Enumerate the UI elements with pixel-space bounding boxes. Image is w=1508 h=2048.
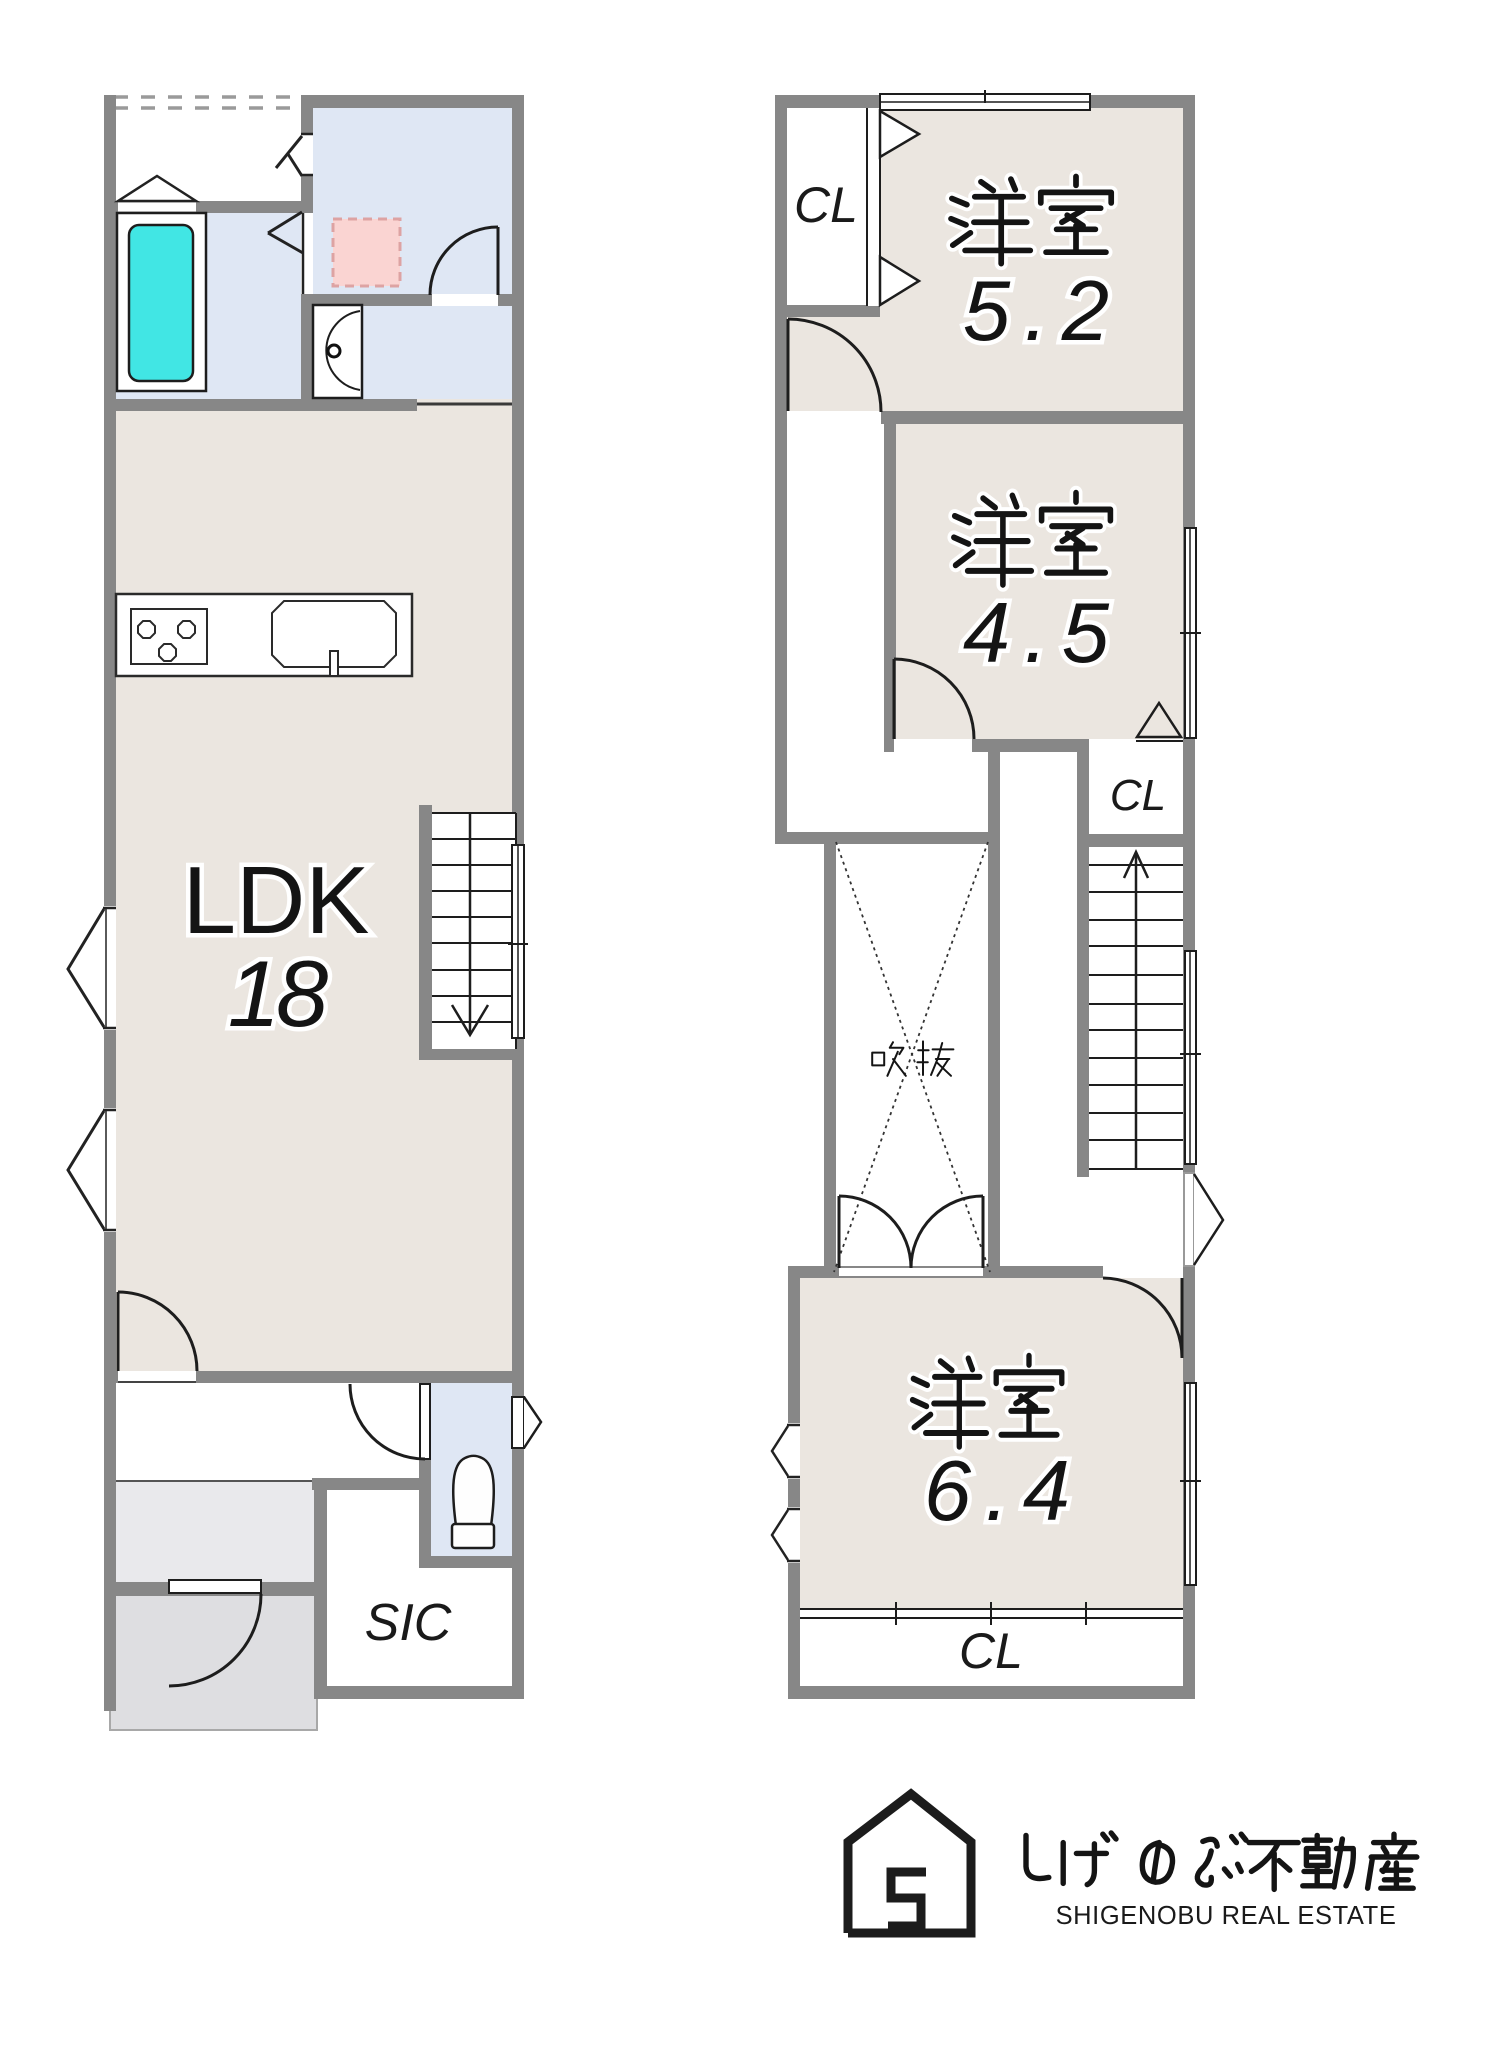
svg-text:4.5: 4.5: [963, 586, 1123, 681]
svg-text:18: 18: [228, 941, 328, 1046]
svg-text:6.4: 6.4: [924, 1444, 1084, 1539]
svg-text:SHIGENOBU REAL ESTATE: SHIGENOBU REAL ESTATE: [1056, 1902, 1397, 1930]
svg-text:SIC: SIC: [365, 1594, 452, 1652]
svg-text:CL: CL: [959, 1623, 1023, 1679]
svg-text:LDK: LDK: [183, 847, 370, 954]
svg-text:CL: CL: [794, 177, 858, 233]
svg-text:CL: CL: [1110, 771, 1166, 820]
svg-text:5.2: 5.2: [963, 264, 1123, 359]
